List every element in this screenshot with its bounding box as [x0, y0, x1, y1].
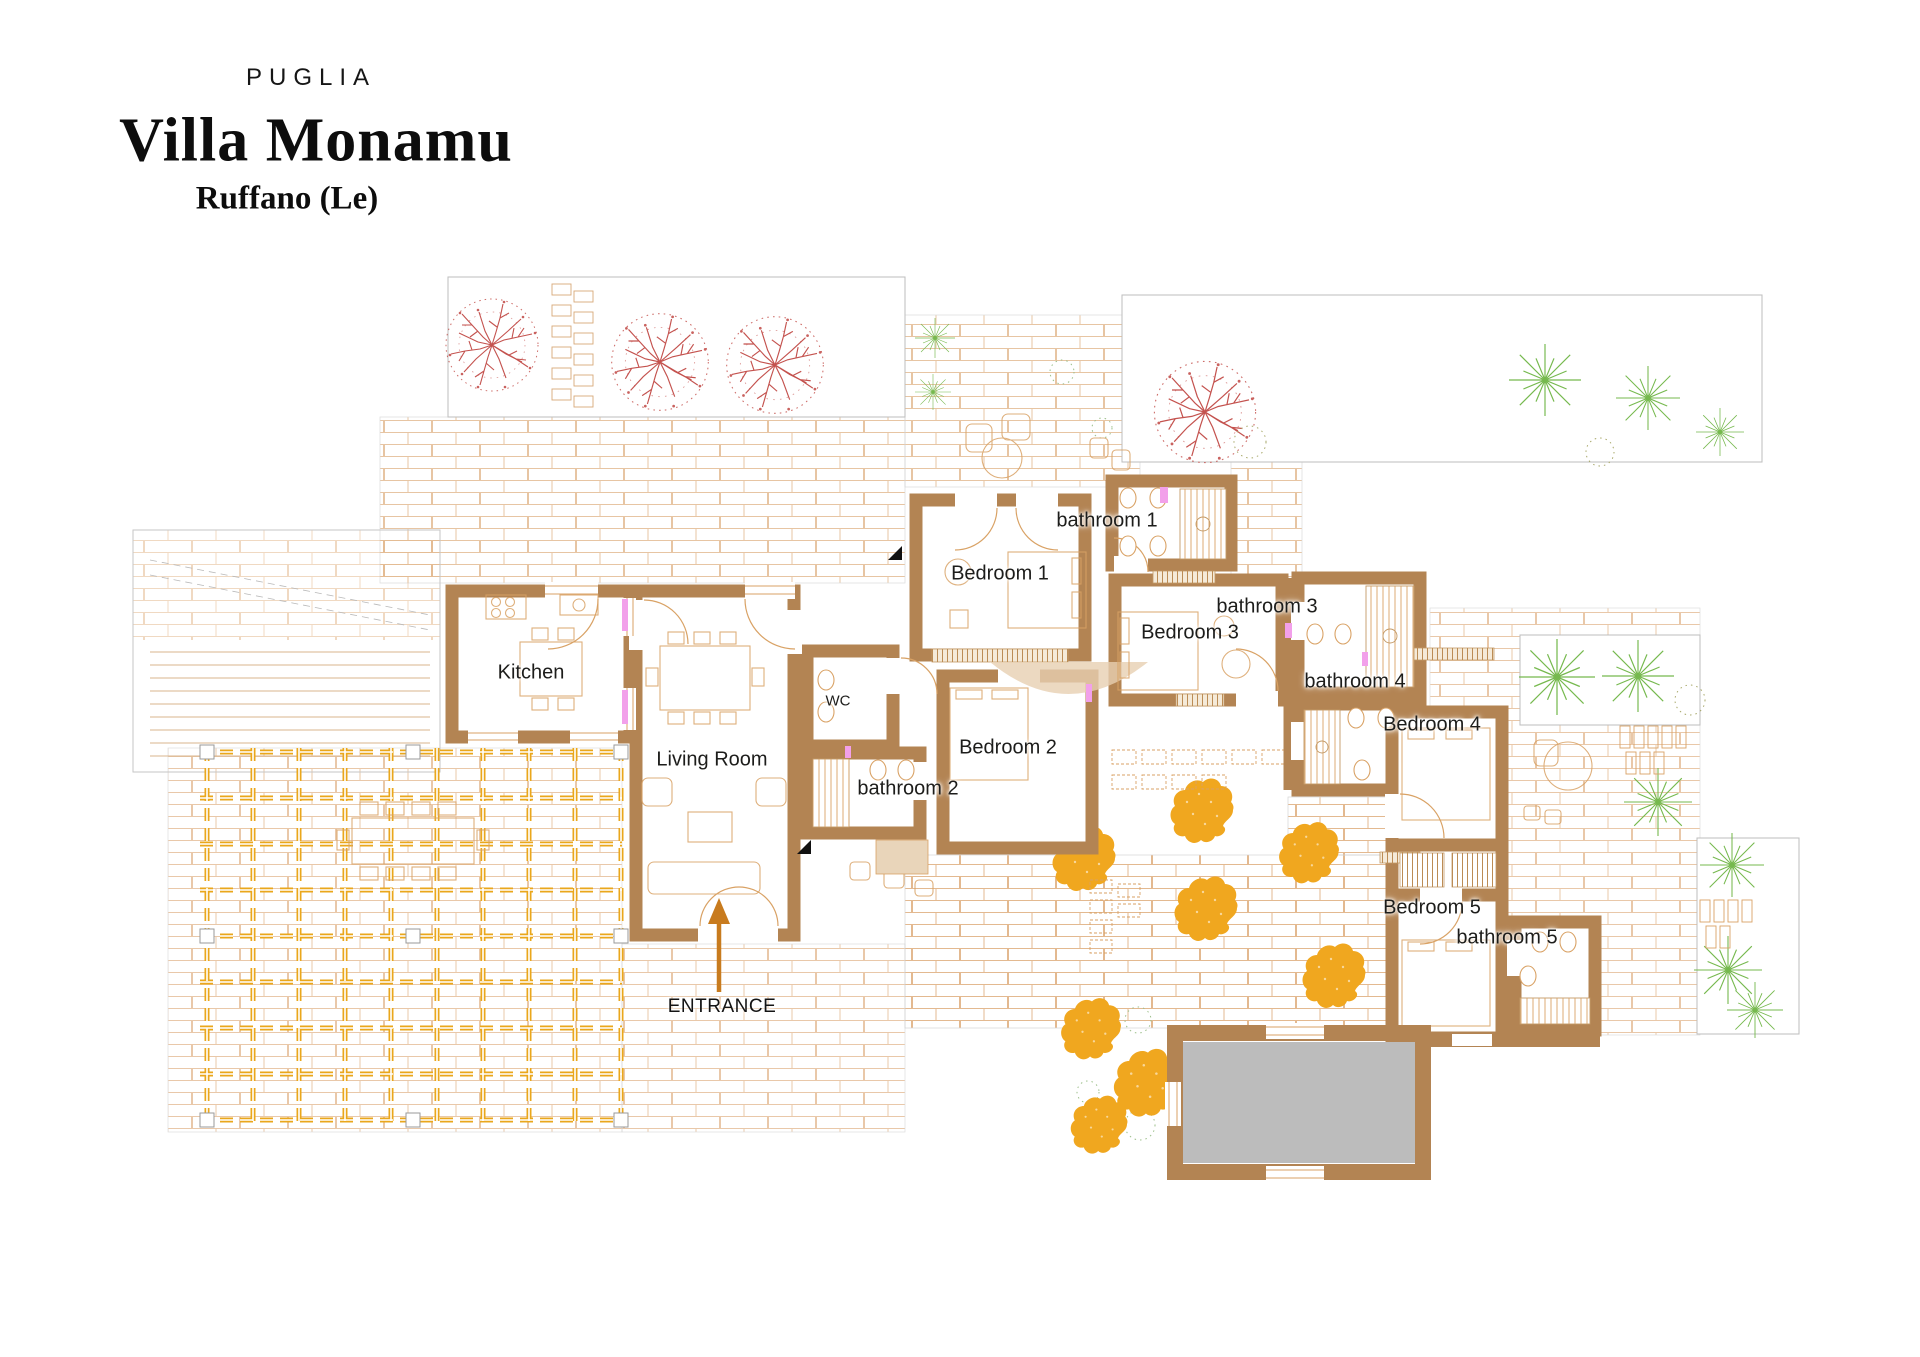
villa-name-title: Villa Monamu	[119, 106, 513, 177]
room-label-bedroom-4: Bedroom 4	[1383, 714, 1481, 737]
room-label-bedroom-1: Bedroom 1	[951, 563, 1049, 586]
room-label-bedroom-3: Bedroom 3	[1141, 622, 1239, 645]
room-label-living-room: Living Room	[656, 749, 767, 772]
room-label-bathroom-3: bathroom 3	[1216, 596, 1317, 619]
room-label-bedroom-5: Bedroom 5	[1383, 897, 1481, 920]
room-label-wc: WC	[826, 693, 851, 710]
room-bedroom-2	[943, 676, 1092, 848]
pool	[1165, 1023, 1600, 1182]
room-label-kitchen: Kitchen	[498, 662, 565, 685]
room-label-bathroom-2: bathroom 2	[857, 778, 958, 801]
floor-plan-sheet: PUGLIA Villa Monamu Ruffano (Le) Kitchen…	[0, 0, 1920, 1357]
entrance-label: ENTRANCE	[668, 996, 777, 1018]
room-label-bathroom-5: bathroom 5	[1456, 927, 1557, 950]
room-label-bedroom-2: Bedroom 2	[959, 737, 1057, 760]
room-label-bathroom-4: bathroom 4	[1304, 671, 1405, 694]
location-subtitle: Ruffano (Le)	[196, 181, 378, 218]
room-label-bathroom-1: bathroom 1	[1056, 510, 1157, 533]
region-title: PUGLIA	[246, 64, 376, 92]
